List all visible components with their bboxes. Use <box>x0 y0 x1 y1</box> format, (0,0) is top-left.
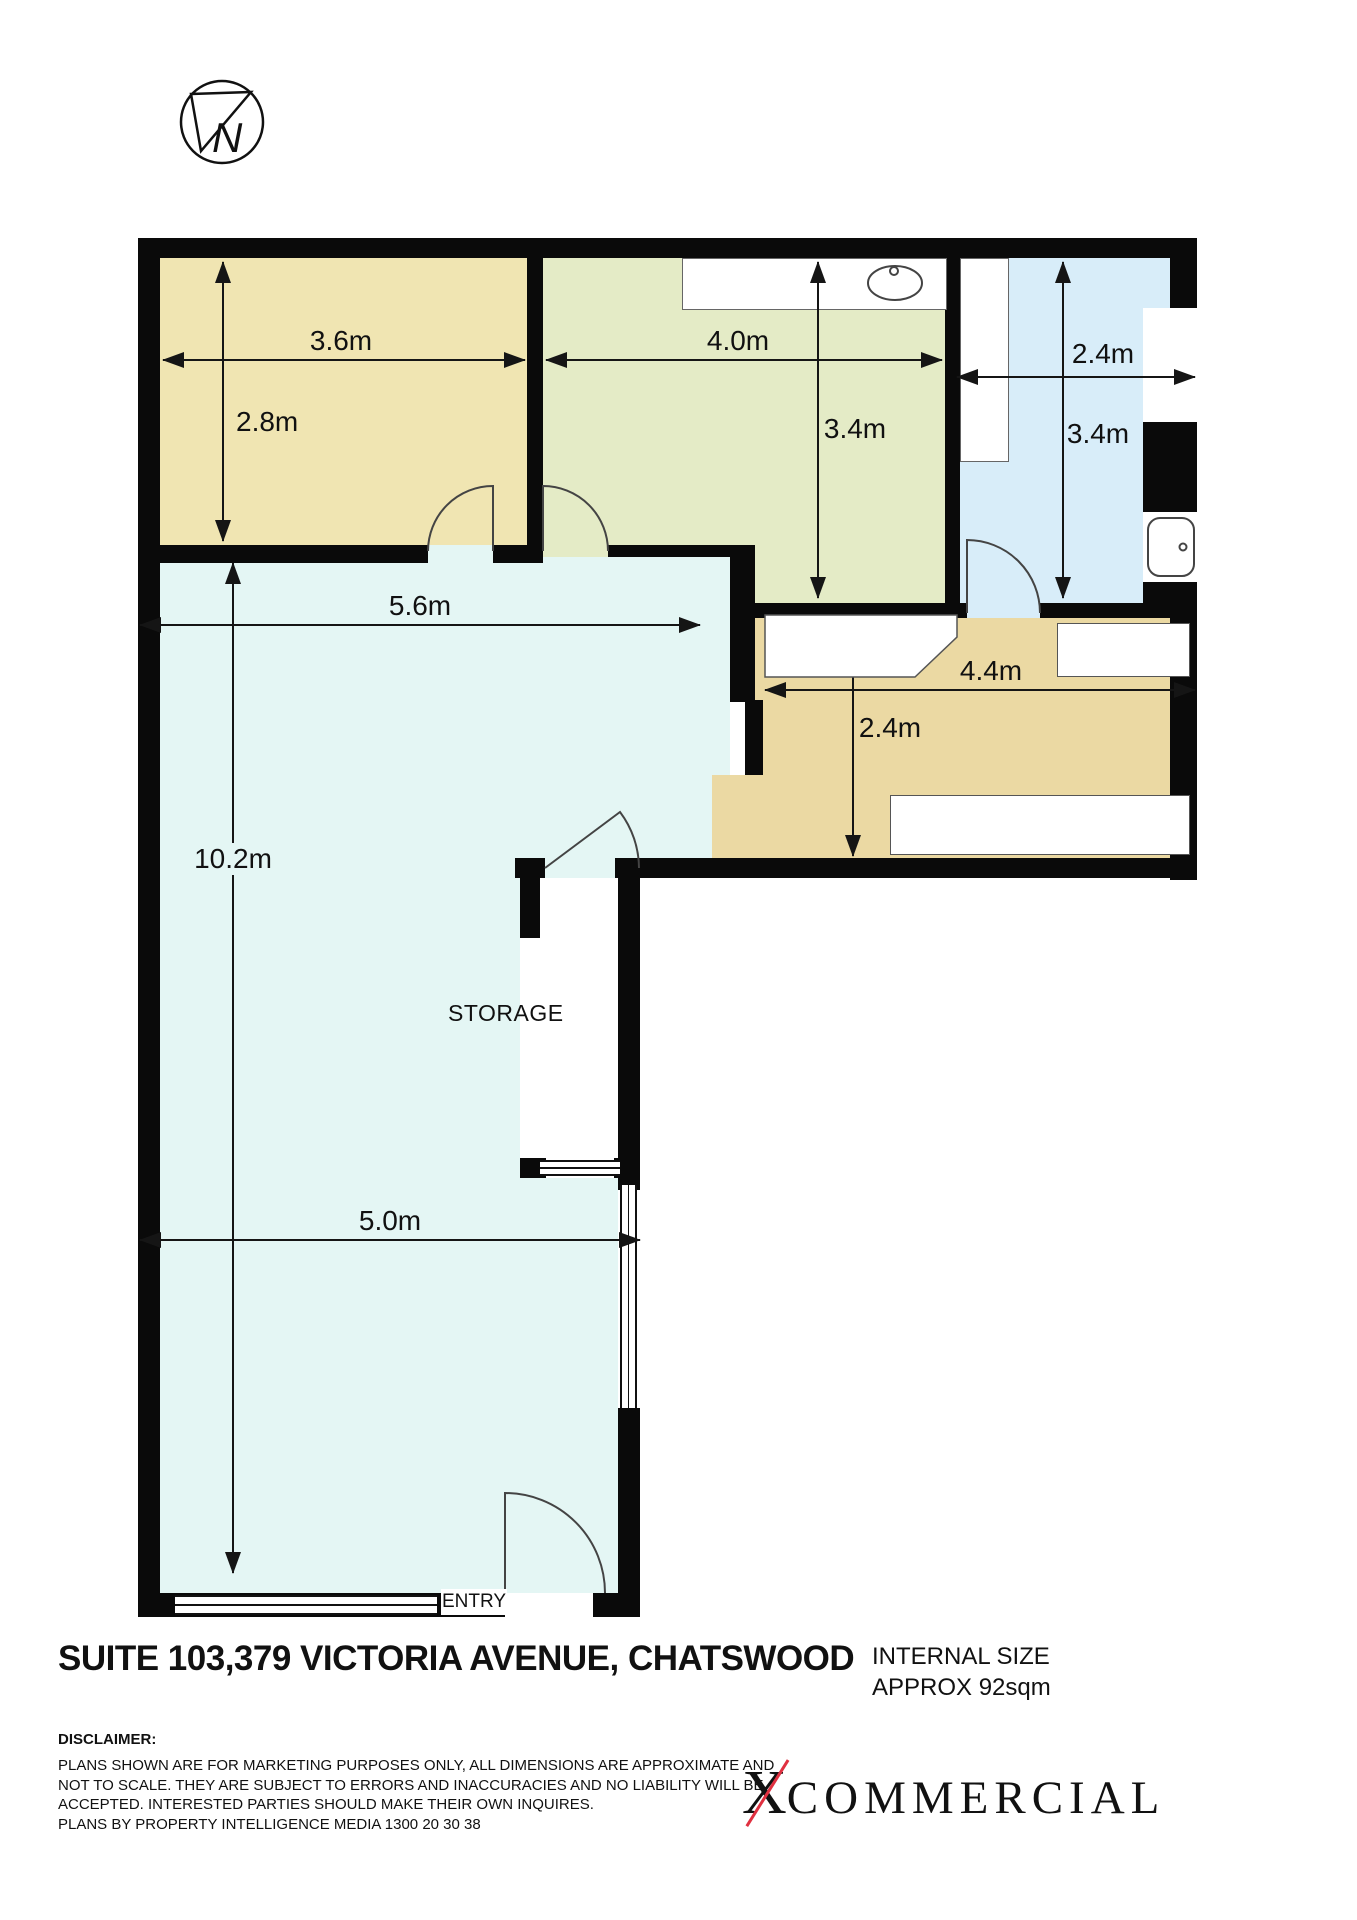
disclaimer-heading: DISCLAIMER: <box>58 1731 156 1748</box>
logo-wordmark: COMMERCIAL <box>787 1767 1166 1829</box>
window-right <box>620 1185 637 1408</box>
bench-hall-lower <box>890 795 1190 855</box>
door-opening-storage <box>545 858 615 878</box>
wall-main-hall-upper <box>730 545 755 702</box>
compass-north <box>181 81 263 163</box>
disclaimer-line: PLANS BY PROPERTY INTELLIGENCE MEDIA 130… <box>58 1815 774 1835</box>
compass-north-label: N <box>212 114 243 161</box>
floorplan-page: 3.6m 2.8m 4.0m 3.4m 2.4m 3.4m 5.6m 4.4m … <box>0 0 1357 1920</box>
dim-line-entry-width <box>140 1239 640 1241</box>
dim-room3-depth: 3.4m <box>1048 418 1148 450</box>
bench-hall-right-upper <box>1057 623 1190 677</box>
dim-room1-width: 3.6m <box>291 325 391 357</box>
disclaimer-text: PLANS SHOWN ARE FOR MARKETING PURPOSES O… <box>58 1756 774 1834</box>
logo-x-glyph: X <box>742 1762 787 1824</box>
wall-storage-left-stub <box>520 878 540 938</box>
dim-line-room1-depth <box>222 262 224 541</box>
wall-right-lower <box>618 1408 640 1617</box>
dim-line-room2-width <box>546 359 942 361</box>
door-opening-wet-area <box>967 603 1040 618</box>
disclaimer-line: PLANS SHOWN ARE FOR MARKETING PURPOSES O… <box>58 1756 774 1776</box>
fixture-wet-left <box>960 258 1009 462</box>
dim-room1-depth: 2.8m <box>236 406 336 438</box>
disclaimer-line: NOT TO SCALE. THEY ARE SUBJECT TO ERRORS… <box>58 1776 774 1796</box>
dim-line-room3-width <box>957 376 1195 378</box>
disclaimer-line: ACCEPTED. INTERESTED PARTIES SHOULD MAKE… <box>58 1795 774 1815</box>
dim-line-main-depth <box>232 563 234 1573</box>
compass-circle <box>181 81 263 163</box>
recess-sink <box>1143 512 1197 582</box>
door-opening-entry <box>505 1593 593 1617</box>
dim-line-hall-width <box>765 689 1195 691</box>
internal-size-line1: INTERNAL SIZE <box>872 1641 1051 1672</box>
wall-storage-right <box>618 878 640 1178</box>
room-office-1 <box>160 258 527 545</box>
dim-room2-depth: 3.4m <box>805 413 905 445</box>
dim-room3-width: 2.4m <box>1053 338 1153 370</box>
storage-label: STORAGE <box>448 1000 564 1027</box>
compass-triangle <box>191 92 251 151</box>
dim-room2-width: 4.0m <box>688 325 788 357</box>
window-storage <box>540 1160 620 1176</box>
dim-hall-width: 4.4m <box>941 655 1041 687</box>
wall-office2-step <box>608 545 743 557</box>
hallway-extension <box>712 775 763 858</box>
wall-main-hall-lower <box>745 700 763 775</box>
dim-line-main-width <box>140 624 700 626</box>
wall-hall-bottom <box>712 858 1197 878</box>
door-opening-office1 <box>428 545 493 563</box>
entry-label: ENTRY <box>441 1589 507 1615</box>
internal-size: INTERNAL SIZE APPROX 92sqm <box>872 1641 1051 1703</box>
wall-divider-office2-wet <box>945 258 960 618</box>
internal-size-line2: APPROX 92sqm <box>872 1672 1051 1703</box>
page-title: SUITE 103,379 VICTORIA AVENUE, CHATSWOOD <box>58 1639 898 1679</box>
dim-main-width: 5.6m <box>370 590 470 622</box>
window-bottom <box>175 1595 437 1615</box>
xcommercial-logo: XCOMMERCIAL <box>742 1762 1165 1829</box>
wall-divider-office1-office2 <box>527 258 543 563</box>
wall-left <box>138 238 160 1617</box>
dim-line-room1-width <box>163 359 525 361</box>
dim-main-depth: 10.2m <box>188 843 278 875</box>
dim-entry-width: 5.0m <box>340 1205 440 1237</box>
dim-hall-depth: 2.4m <box>840 712 940 744</box>
wall-top <box>138 238 1197 258</box>
wall-right-jut-lower <box>1143 582 1170 618</box>
